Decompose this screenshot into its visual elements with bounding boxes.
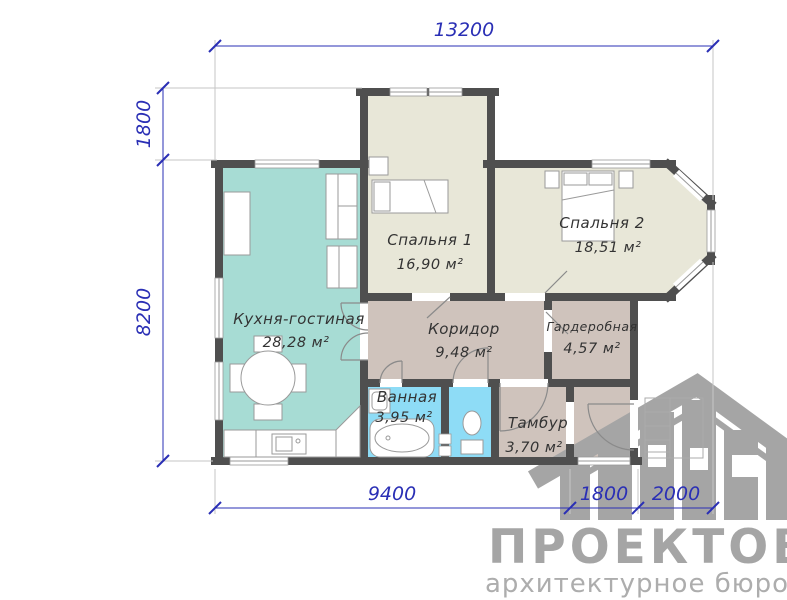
svg-text:Тамбур: Тамбур xyxy=(508,414,568,432)
svg-text:16,90 м²: 16,90 м² xyxy=(397,257,464,273)
dim-top-width: 13200 xyxy=(434,19,494,41)
sofa-small xyxy=(327,246,357,288)
svg-text:Спальня 2: Спальня 2 xyxy=(559,214,645,232)
watermark-tagline: архитектурное бюро xyxy=(485,569,787,599)
nightstand-bedroom2-right xyxy=(619,171,633,188)
nightstand-bedroom1 xyxy=(369,157,388,175)
watermark-brand-name: ПРОЕКТОВ xyxy=(488,520,787,575)
window-tambur-bottom xyxy=(578,457,630,465)
svg-text:4,57 м²: 4,57 м² xyxy=(563,341,620,357)
dim-left-height: 8200 xyxy=(133,288,155,336)
nightstand-bedroom2-left xyxy=(545,171,559,188)
window-bay-right xyxy=(707,210,715,252)
bed-single xyxy=(372,180,448,213)
floor-plan-svg: ПРОЕКТОВ архитектурное бюро xyxy=(0,0,787,600)
window-bedroom1-a xyxy=(390,88,427,96)
room-wardrobe xyxy=(552,301,630,379)
dim-bottom-porch: 2000 xyxy=(652,483,700,505)
window-kitchen-top xyxy=(255,160,319,168)
svg-text:9,48 м²: 9,48 м² xyxy=(435,345,492,361)
floor-plan-page: ПРОЕКТОВ архитектурное бюро xyxy=(0,0,787,600)
svg-text:Гардеробная: Гардеробная xyxy=(546,319,637,334)
window-bedroom2-top xyxy=(592,160,650,168)
dim-bottom-tambur: 1800 xyxy=(580,483,628,505)
window-left-2 xyxy=(215,362,223,420)
window-kitchen-bottom xyxy=(230,457,288,465)
svg-text:3,70 м²: 3,70 м² xyxy=(505,440,562,456)
svg-text:Спальня 1: Спальня 1 xyxy=(387,231,473,249)
svg-text:18,51 м²: 18,51 м² xyxy=(575,240,642,256)
window-left-1 xyxy=(215,278,223,338)
svg-text:Кухня-гостиная: Кухня-гостиная xyxy=(233,310,364,328)
svg-text:Ванная: Ванная xyxy=(377,388,437,406)
dim-bottom-main: 9400 xyxy=(368,483,416,505)
svg-text:28,28 м²: 28,28 м² xyxy=(263,335,330,351)
tv-stand xyxy=(224,192,250,255)
svg-text:Коридор: Коридор xyxy=(428,320,500,338)
window-bedroom1-b xyxy=(429,88,462,96)
svg-text:3,95 м²: 3,95 м² xyxy=(375,410,432,426)
sofa-large xyxy=(326,174,357,239)
dim-left-upper: 1800 xyxy=(133,100,155,148)
